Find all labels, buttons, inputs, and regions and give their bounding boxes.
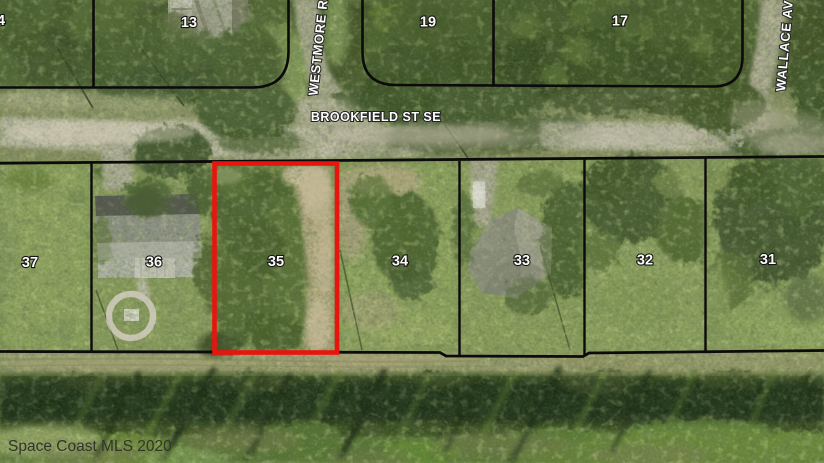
svg-text:37: 37 (22, 255, 38, 271)
svg-text:4: 4 (0, 13, 5, 29)
svg-text:31: 31 (760, 252, 776, 268)
svg-text:36: 36 (146, 255, 162, 271)
svg-text:19: 19 (420, 15, 436, 31)
svg-text:35: 35 (268, 254, 284, 270)
svg-text:33: 33 (514, 253, 530, 269)
svg-text:13: 13 (181, 15, 197, 31)
svg-text:Space Coast MLS 2020: Space Coast MLS 2020 (8, 438, 172, 455)
svg-text:17: 17 (612, 14, 628, 30)
svg-text:BROOKFIELD ST SE: BROOKFIELD ST SE (311, 110, 441, 124)
svg-text:34: 34 (392, 254, 408, 270)
svg-text:32: 32 (637, 253, 653, 269)
